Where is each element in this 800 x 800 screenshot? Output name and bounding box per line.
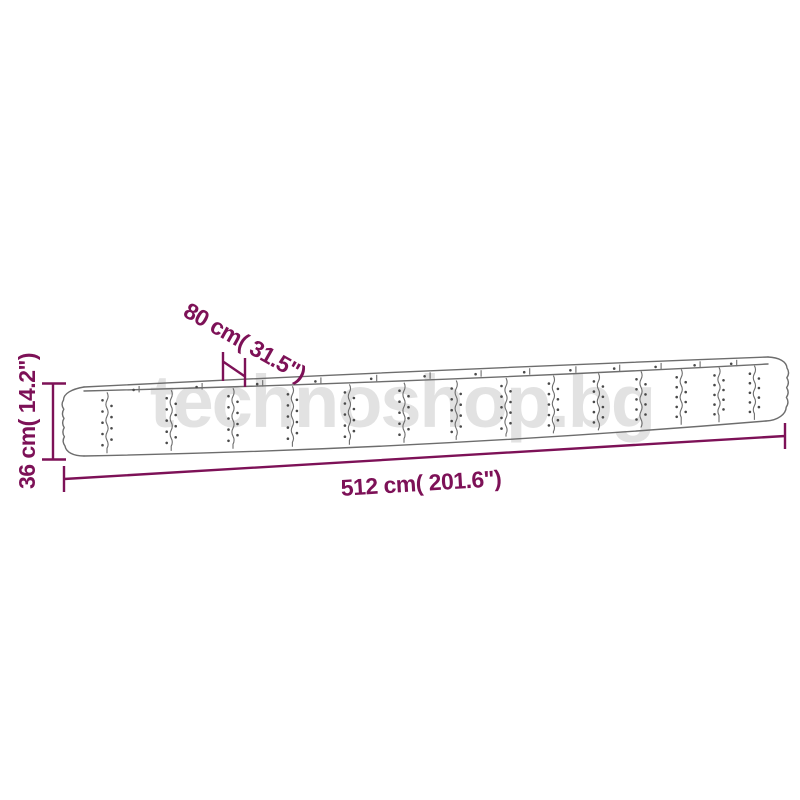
product-dimension-diagram: technoshop.bg 36 cm( 14.2") 80 cm( 31.5"…: [0, 0, 800, 800]
left-end-cap: [62, 387, 84, 456]
length-dimension-label: 512 cm( 201.6"): [340, 465, 502, 501]
right-end-cap: [766, 357, 789, 421]
planter-drawing: technoshop.bg 36 cm( 14.2") 80 cm( 31.5"…: [0, 0, 800, 800]
height-dimension-label: 36 cm( 14.2"): [14, 353, 40, 489]
